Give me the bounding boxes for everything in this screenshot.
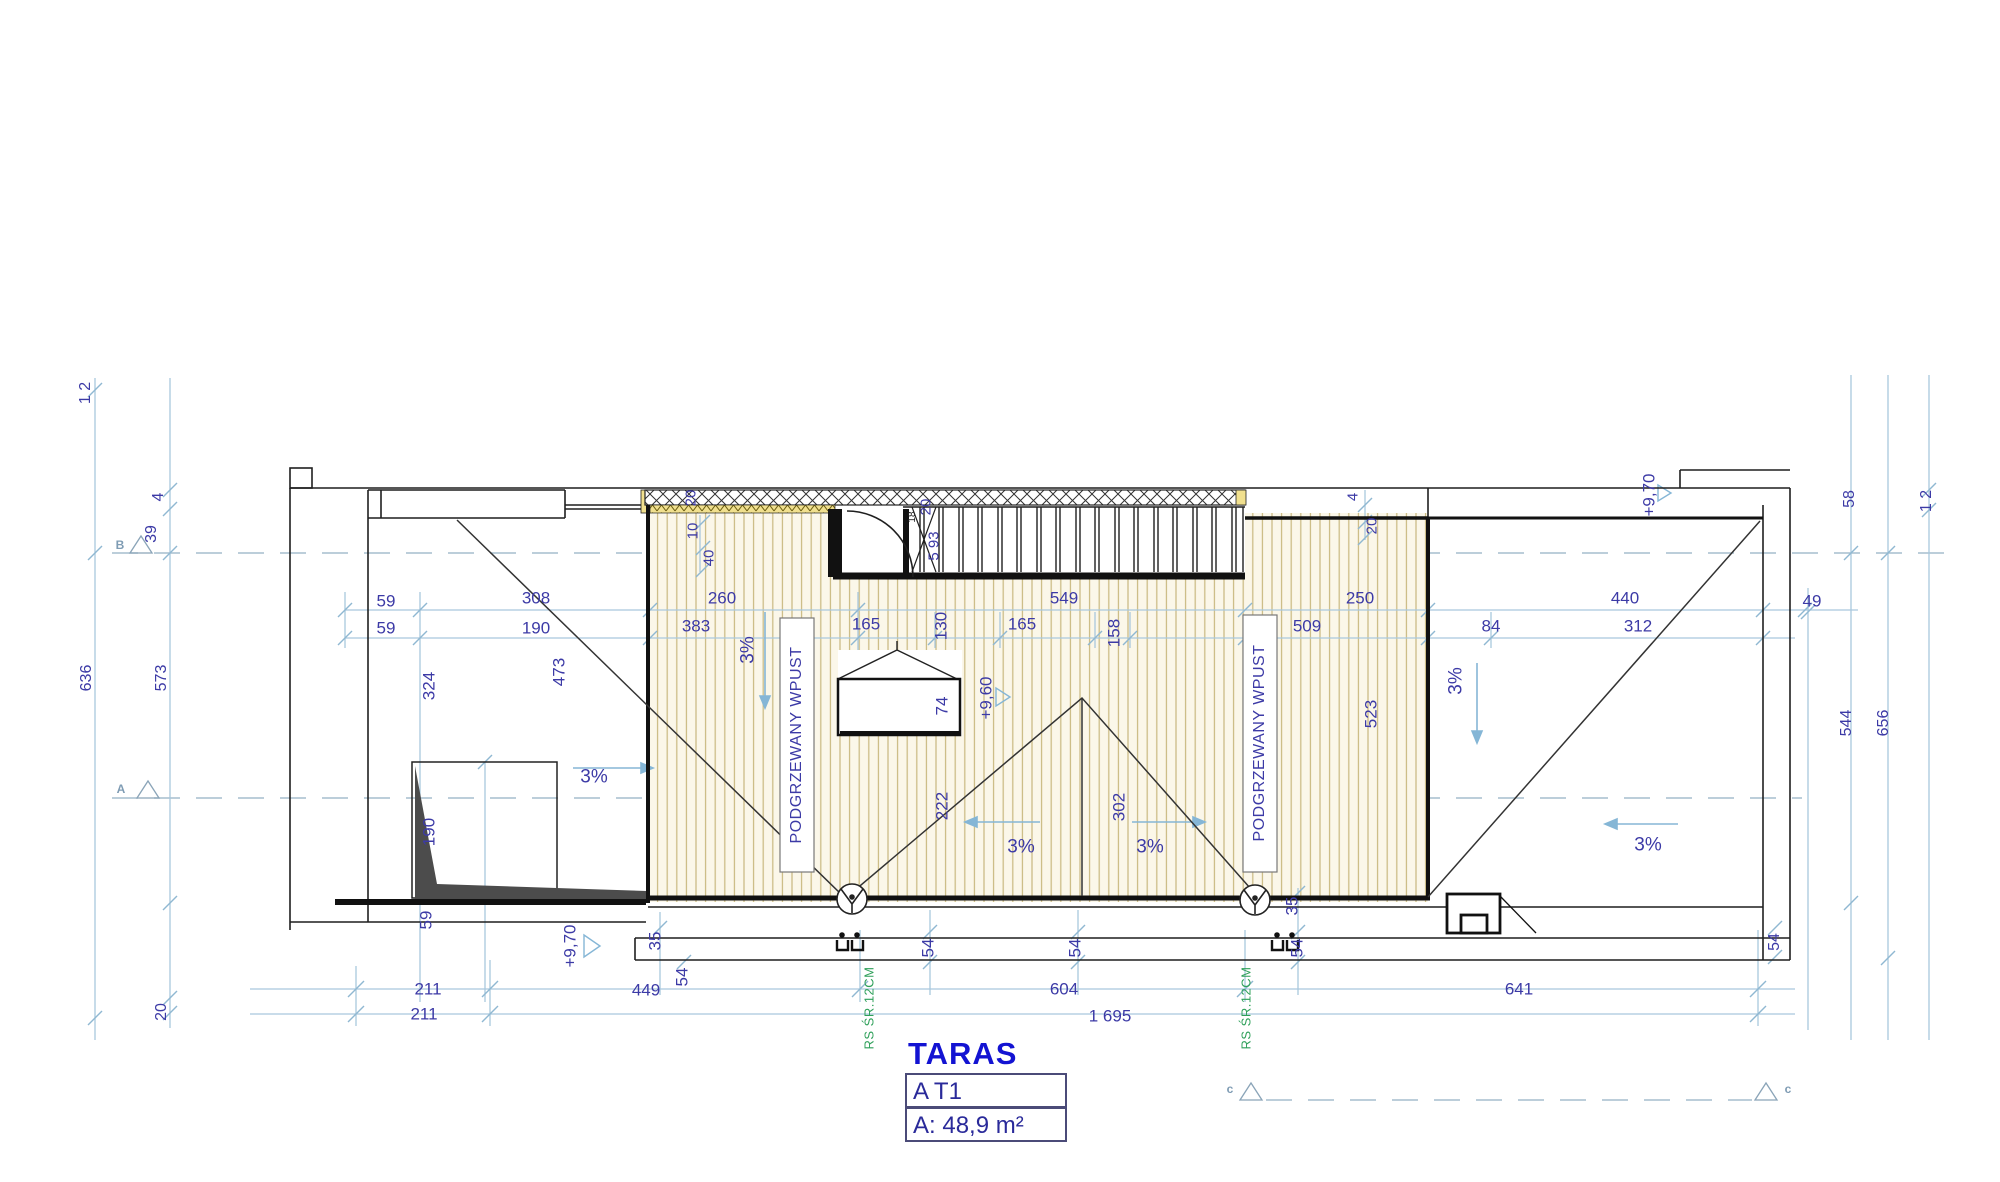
- dim-label: 190: [522, 620, 550, 637]
- section-marker-label: c: [1785, 1083, 1792, 1095]
- dim-label: 58: [1842, 490, 1858, 508]
- terrace-plan-drawing: 59 308 260 549 250 440 49 59 190 383 165…: [0, 0, 2000, 1182]
- step-glyph: [1447, 894, 1536, 933]
- dim-label: 10: [686, 523, 701, 540]
- dim-label: 165: [1008, 616, 1036, 633]
- dim-label: 222: [934, 792, 951, 820]
- dim-label: 35: [1284, 897, 1301, 916]
- section-marker-label: c: [1227, 1083, 1234, 1095]
- dim-label: 440: [1611, 590, 1639, 607]
- dim-label: 549: [1050, 590, 1078, 607]
- dim-label: 158: [1106, 619, 1123, 647]
- dim-label: 49: [1803, 593, 1822, 610]
- section-marker-label: B: [116, 539, 125, 551]
- dim-label: 260: [708, 590, 736, 607]
- dim-label: 59: [377, 620, 396, 637]
- dim-label: 165: [852, 616, 880, 633]
- dim-label: 1 695: [1089, 1008, 1132, 1025]
- left-room-detail: [412, 762, 646, 899]
- dim-label: 20: [1365, 518, 1380, 535]
- level-label: +9,60: [978, 676, 995, 719]
- dim-label: 18: [908, 511, 918, 522]
- skylight: [838, 641, 962, 736]
- dim-label: 54: [920, 939, 937, 958]
- dim-label: 473: [551, 658, 568, 686]
- dim-label: 54: [1767, 933, 1783, 951]
- dim-label: 604: [1050, 981, 1078, 998]
- dim-label: 250: [1346, 590, 1374, 607]
- dim-label: 523: [1363, 700, 1380, 728]
- dim-label: 39: [144, 525, 160, 543]
- dim-label: 573: [154, 665, 170, 692]
- dim-label: 5 93: [927, 531, 942, 560]
- dim-label: 130: [933, 612, 950, 640]
- dim-label: 302: [1111, 793, 1128, 821]
- dim-label: 40: [702, 550, 717, 567]
- level-label: +9,70: [562, 924, 579, 967]
- drain-note-label: RS ŚR.12CM: [1240, 966, 1253, 1049]
- dim-label: 324: [421, 672, 438, 700]
- area-box: A: 48,9 m²: [905, 1107, 1067, 1142]
- dim-label: 1 2: [78, 382, 94, 404]
- drain-note-label: RS ŚR.12CM: [863, 966, 876, 1049]
- dim-label: 54: [674, 968, 691, 987]
- slope-label: 3%: [1007, 838, 1034, 857]
- heated-drain-label: PODGRZEWANY WPUST: [1252, 645, 1268, 842]
- dim-label: 54: [1289, 939, 1306, 958]
- dim-label: 1 2: [1919, 490, 1935, 512]
- dim-label: 4: [151, 493, 167, 502]
- dim-label: 20: [919, 499, 934, 516]
- level-label: +9,70: [1641, 473, 1658, 516]
- dim-label: 641: [1505, 981, 1533, 998]
- dim-label: 312: [1624, 618, 1652, 635]
- dim-label: 20: [684, 490, 699, 507]
- dim-label: 35: [647, 932, 664, 951]
- dim-label: 544: [1839, 710, 1855, 737]
- slope-label: 3%: [1634, 836, 1661, 855]
- dim-label: 20: [154, 1003, 170, 1021]
- section-marker-label: A: [117, 783, 126, 795]
- dim-label: 59: [377, 593, 396, 610]
- dim-label: 383: [682, 618, 710, 635]
- dim-label: 211: [410, 1006, 437, 1023]
- dim-label: 84: [1482, 618, 1501, 635]
- unit-code-box: A T1: [905, 1073, 1067, 1108]
- dim-label: 211: [414, 981, 441, 998]
- dim-label: 4: [1346, 493, 1361, 501]
- slope-label: 3%: [1136, 838, 1163, 857]
- dim-label: 190: [421, 818, 438, 846]
- dim-label: 656: [1876, 710, 1892, 737]
- heated-drain-label: PODGRZEWANY WPUST: [789, 647, 805, 844]
- dim-label: 509: [1293, 618, 1321, 635]
- page-title: TARAS: [908, 1036, 1017, 1072]
- slope-label: 3%: [580, 768, 607, 787]
- dim-label: 74: [934, 697, 951, 716]
- dim-label: 54: [1067, 939, 1084, 958]
- slope-label: 3%: [739, 636, 758, 663]
- dim-label: 636: [79, 665, 95, 692]
- dim-label: 59: [418, 911, 435, 930]
- dim-label: 308: [522, 590, 550, 607]
- slope-label: 3%: [1447, 667, 1466, 694]
- dim-label: 449: [632, 982, 660, 999]
- plan-linework: [0, 0, 2000, 1182]
